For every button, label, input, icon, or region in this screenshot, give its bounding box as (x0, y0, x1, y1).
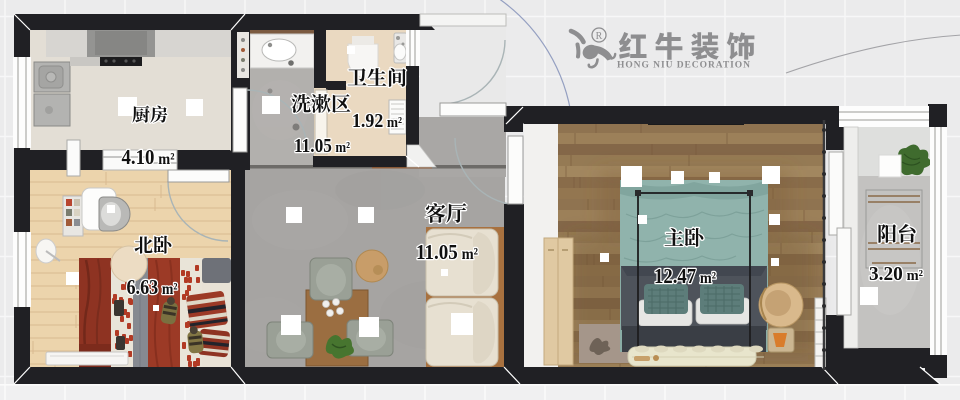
svg-text:HONG NIU DECORATION: HONG NIU DECORATION (617, 61, 750, 71)
svg-text:R: R (596, 31, 603, 42)
